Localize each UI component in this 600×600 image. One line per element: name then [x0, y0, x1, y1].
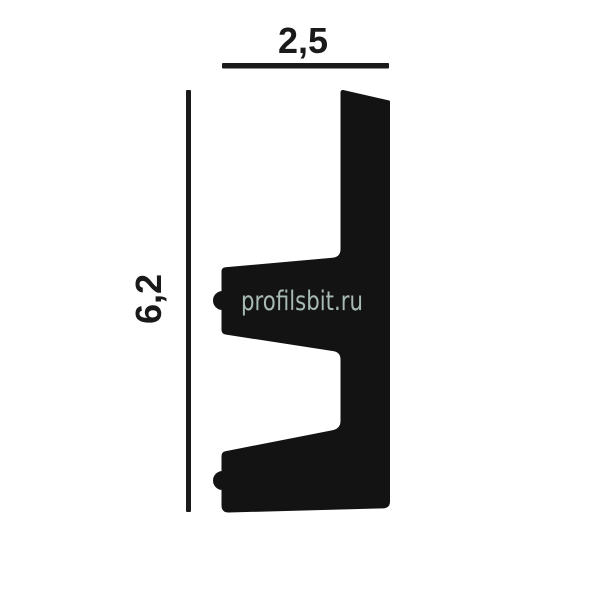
profile-diagram: 2,5 6,2 profilsbit.ru [0, 0, 600, 600]
height-dimension-line [186, 90, 191, 512]
diagram-canvas: 2,5 6,2 profilsbit.ru [0, 0, 600, 600]
width-dimension-line [222, 63, 389, 69]
watermark-text: profilsbit.ru [241, 286, 363, 317]
width-label: 2,5 [278, 20, 328, 61]
height-label: 6,2 [128, 274, 169, 324]
